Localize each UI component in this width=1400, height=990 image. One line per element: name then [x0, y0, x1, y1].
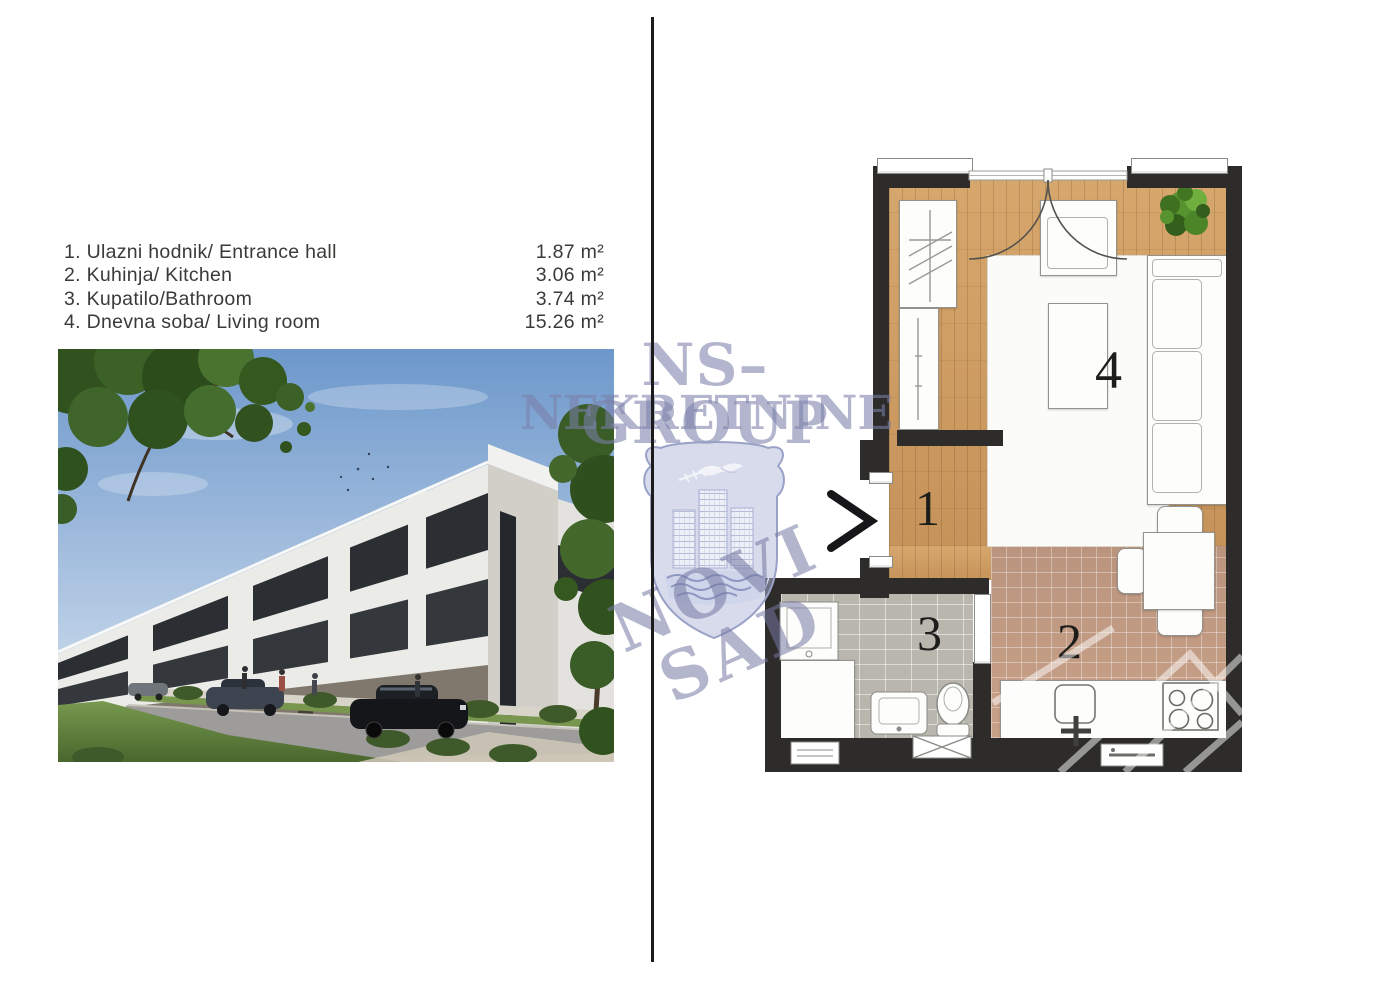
room-label-kitchen: 2 [1057, 616, 1082, 666]
room-list-item: 4. Dnevna soba/ Living room 15.26 m² [64, 311, 604, 334]
room-area: 3.74 m² [536, 288, 604, 311]
sofa [1147, 255, 1228, 505]
wall-left [873, 166, 889, 440]
entrance-jamb-top [869, 472, 893, 484]
plant-icon [1155, 184, 1215, 246]
wall-interior-hall [897, 430, 1003, 446]
shield-buildings [673, 490, 753, 568]
bathroom-door [974, 594, 991, 664]
wall-bathroom-top [765, 578, 989, 594]
room-list-item: 3. Kupatilo/Bathroom 3.74 m² [64, 288, 604, 311]
room-label: 4. Dnevna soba/ Living room [64, 311, 320, 334]
building-photo [58, 349, 614, 762]
room-label-living: 4 [1095, 343, 1122, 397]
room-area: 1.87 m² [536, 241, 604, 264]
room-area: 15.26 m² [525, 311, 604, 334]
room-label-hall: 1 [915, 483, 940, 533]
armchair [1040, 200, 1117, 276]
window-top-right [1131, 158, 1228, 174]
vertical-divider [651, 17, 654, 962]
wall-right [1226, 166, 1242, 772]
wood-floor-hall [889, 546, 991, 580]
room-label-bathroom: 3 [917, 608, 942, 658]
bathroom-cabinet [780, 660, 855, 740]
shield-water [665, 571, 765, 605]
entrance-arrow-icon [831, 494, 871, 548]
real-estate-flyer: 1. Ulazni hodnik/ Entrance hall 1.87 m² … [0, 0, 1400, 990]
floor-plan: 4 1 3 2 [765, 158, 1243, 780]
room-label: 2. Kuhinja/ Kitchen [64, 264, 232, 287]
closet-unit [899, 308, 939, 430]
room-list: 1. Ulazni hodnik/ Entrance hall 1.87 m² … [64, 241, 604, 335]
entrance-jamb-bottom [869, 556, 893, 568]
window-top-left [877, 158, 973, 174]
room-area: 3.06 m² [536, 264, 604, 287]
room-list-item: 1. Ulazni hodnik/ Entrance hall 1.87 m² [64, 241, 604, 264]
room-list-item: 2. Kuhinja/ Kitchen 3.06 m² [64, 264, 604, 287]
dining-table [1143, 532, 1215, 610]
wardrobe-unit [899, 200, 957, 308]
wall-bottom-left [765, 738, 991, 772]
shield-waves [667, 575, 763, 599]
room-label: 3. Kupatilo/Bathroom [64, 288, 252, 311]
shield-dove [679, 463, 743, 482]
wall-bottom-right [991, 738, 1242, 772]
kitchen-counter [1000, 680, 1228, 740]
room-label: 1. Ulazni hodnik/ Entrance hall [64, 241, 337, 264]
